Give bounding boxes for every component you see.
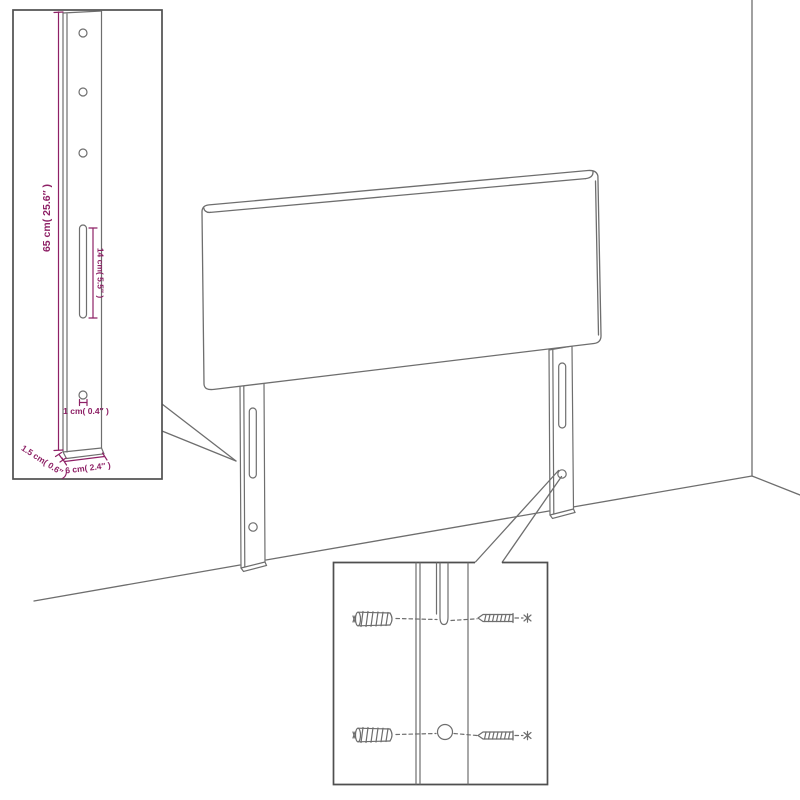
right-leg-slot (559, 363, 566, 428)
right-leg (549, 346, 575, 519)
diagram-svg: 65 cm( 25.6″ ) 14 cm( 5.5″ ) 1 cm( 0.4″ … (0, 0, 800, 800)
left-leg-slot (249, 408, 256, 478)
floor-line-left-segment-1 (34, 565, 240, 601)
dimension-label-hole-diameter: 1 cm( 0.4″ ) (63, 406, 109, 416)
strut-hole-3 (79, 149, 87, 157)
panel-outline (202, 170, 601, 389)
floor-line-left-segment-2 (266, 511, 549, 560)
dimension-label-slot-length: 14 cm( 5.5″ ) (95, 248, 105, 299)
headboard-assembly-diagram: 65 cm( 25.6″ ) 14 cm( 5.5″ ) 1 cm( 0.4″ … (0, 0, 800, 800)
dimension-label-leg-height: 65 cm( 25.6″ ) (41, 184, 53, 252)
left-leg (240, 383, 267, 572)
right-leg-hole (558, 470, 566, 478)
strut-slot (80, 225, 87, 318)
callout-line-lower (162, 431, 236, 461)
callout-lines-left-inset (162, 404, 236, 461)
floor-line-left-segment-3 (573, 476, 752, 507)
inset-leg-side-view: 65 cm( 25.6″ ) 14 cm( 5.5″ ) 1 cm( 0.4″ … (13, 10, 162, 480)
callout-line-upper (162, 404, 236, 461)
strut-hole-1 (79, 29, 87, 37)
callout-line-right (502, 477, 562, 563)
left-leg-hole (249, 523, 257, 531)
strut-small-hole (79, 391, 87, 399)
inset-mounting-detail (334, 563, 548, 785)
dim-tick-height-bottom (54, 450, 63, 451)
floor-line-right (752, 476, 800, 495)
callout-line-left (475, 471, 559, 563)
dim-tick-height-top (54, 12, 63, 13)
headboard-panel (202, 170, 601, 389)
strut-hole-2 (79, 88, 87, 96)
closeup-hole (438, 725, 453, 740)
